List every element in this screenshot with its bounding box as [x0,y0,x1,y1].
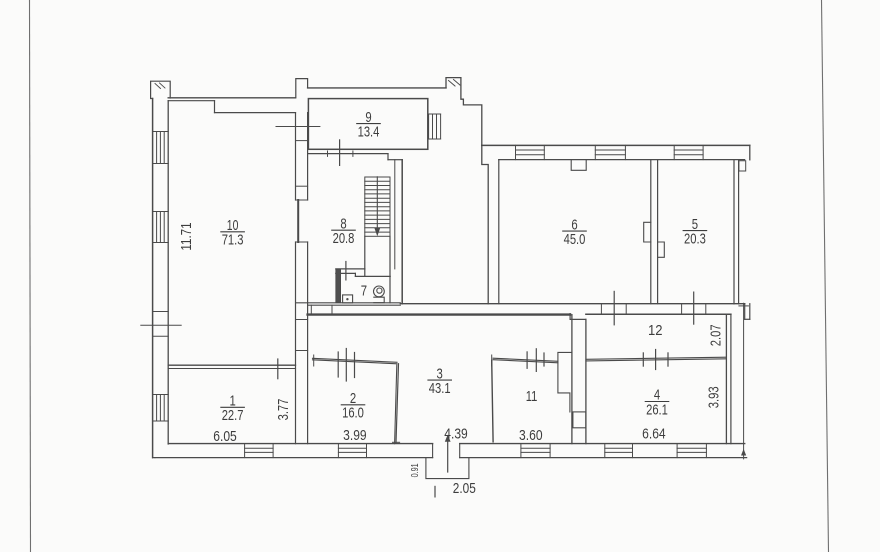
svg-text:71.3: 71.3 [222,232,244,249]
svg-text:26.1: 26.1 [646,401,668,418]
svg-text:3.77: 3.77 [275,399,292,421]
svg-text:43.1: 43.1 [429,380,451,397]
svg-text:13.4: 13.4 [358,123,380,140]
svg-text:4.39: 4.39 [444,425,468,442]
svg-text:20.3: 20.3 [684,230,706,247]
svg-text:6.64: 6.64 [642,426,666,443]
svg-text:11: 11 [526,388,538,405]
svg-text:3.93: 3.93 [705,386,722,408]
svg-text:16.0: 16.0 [342,405,364,422]
svg-text:7: 7 [361,283,367,300]
svg-text:2.07: 2.07 [708,324,725,346]
svg-text:20.8: 20.8 [333,230,355,247]
svg-text:12: 12 [648,322,663,339]
svg-text:3.60: 3.60 [519,427,543,444]
svg-text:6.05: 6.05 [213,428,237,445]
svg-text:0.91: 0.91 [409,463,421,477]
svg-text:11.71: 11.71 [178,222,195,250]
svg-text:3.99: 3.99 [343,427,367,444]
svg-text:45.0: 45.0 [564,231,586,248]
svg-text:22.7: 22.7 [222,407,244,424]
svg-text:2.05: 2.05 [453,480,476,497]
